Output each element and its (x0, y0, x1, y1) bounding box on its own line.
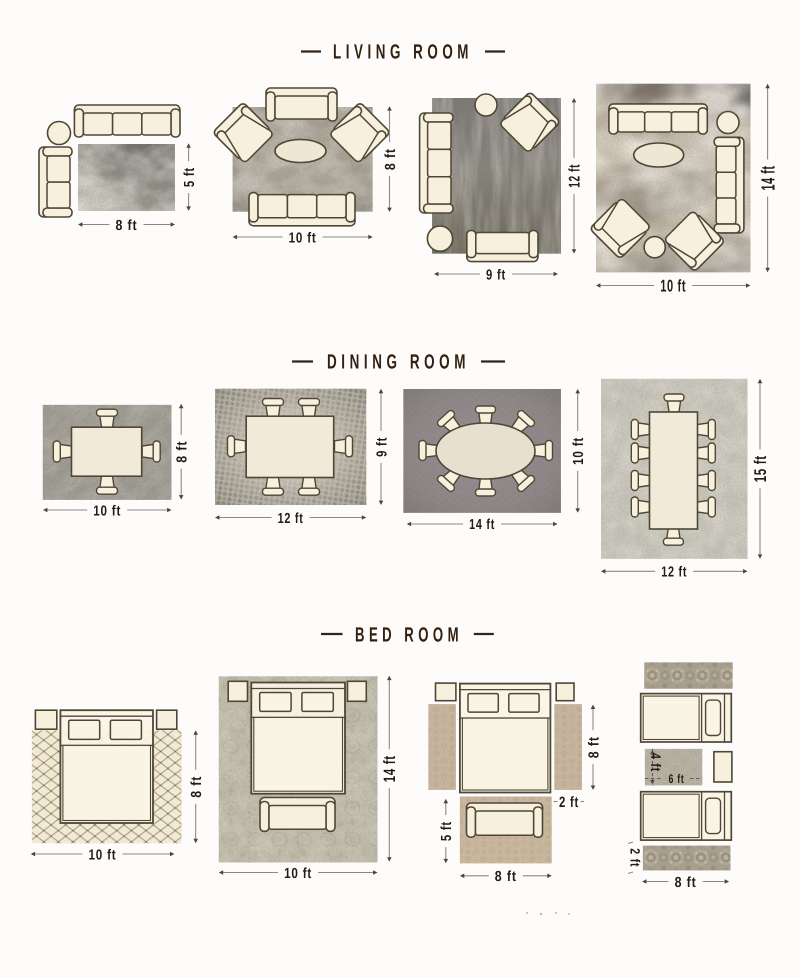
svg-text:5 ft: 5 ft (439, 821, 455, 841)
svg-text:10 ft: 10 ft (284, 866, 312, 882)
svg-text:9 ft: 9 ft (486, 267, 506, 283)
svg-text:4 ft: 4 ft (648, 753, 664, 772)
svg-text:10 ft: 10 ft (571, 437, 587, 465)
svg-text:5 ft: 5 ft (182, 167, 198, 187)
svg-text:14 ft: 14 ft (469, 517, 495, 533)
svg-text:12 ft: 12 ft (567, 164, 584, 188)
svg-text:14 ft: 14 ft (381, 755, 399, 782)
svg-text:8 ft: 8 ft (175, 441, 191, 463)
svg-text:8 ft: 8 ft (383, 148, 399, 170)
svg-text:6 ft: 6 ft (669, 772, 685, 786)
svg-text:LIVING ROOM: LIVING ROOM (333, 41, 473, 64)
svg-text:BED ROOM: BED ROOM (355, 624, 463, 647)
svg-text:8 ft: 8 ft (586, 736, 602, 758)
svg-text:10 ft: 10 ft (289, 230, 317, 246)
svg-text:10 ft: 10 ft (89, 847, 117, 863)
svg-text:12 ft: 12 ft (278, 511, 304, 527)
svg-text:8 ft: 8 ft (189, 776, 205, 798)
svg-text:8 ft: 8 ft (116, 218, 138, 234)
svg-text:10 ft: 10 ft (660, 277, 686, 296)
svg-text:2 ft: 2 ft (628, 848, 643, 867)
svg-text:9 ft: 9 ft (374, 437, 390, 457)
svg-text:2 ft: 2 ft (559, 794, 579, 811)
svg-text:10 ft: 10 ft (93, 503, 121, 519)
svg-text:12 ft: 12 ft (661, 565, 687, 581)
svg-text:8 ft: 8 ft (495, 869, 517, 885)
svg-text:14 ft: 14 ft (758, 166, 779, 191)
svg-text:DINING ROOM: DINING ROOM (327, 351, 470, 374)
svg-text:8 ft: 8 ft (675, 875, 697, 891)
svg-text:15 ft: 15 ft (751, 455, 770, 482)
